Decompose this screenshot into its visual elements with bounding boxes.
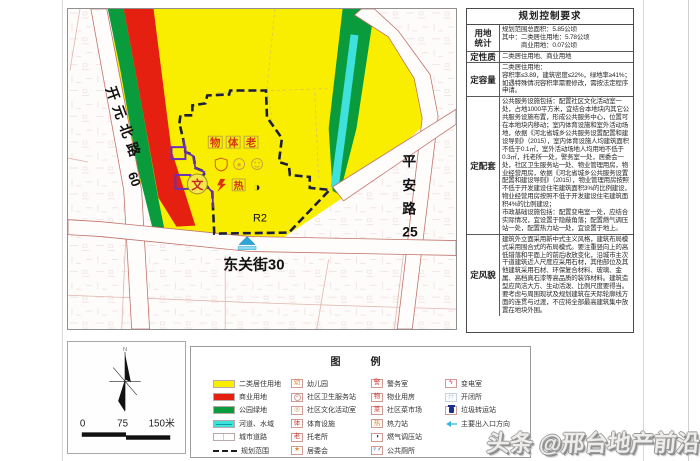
legend-facility-icon: 警 <box>371 379 383 388</box>
legend-item-label: 社区菜市场 <box>387 405 422 415</box>
legend-infrastructure-icon <box>445 406 457 415</box>
legend-column-facilities-2: 警 警务室 物 物业用房 菜 社区菜市场 热 热力站 <box>371 377 422 457</box>
table-row-label: 定容量 <box>467 63 500 97</box>
legend-facility-icon: 菜 <box>371 406 383 415</box>
legend-item-label: 规划范围 <box>241 446 269 456</box>
table-row-content: 规划范围总面积：5.85公顷 其中：二类居住用地：5.78公顷 商业用地：0.0… <box>500 25 633 51</box>
table-row: 用地 统计 规划范围总面积：5.85公顷 其中：二类居住用地：5.78公顷 商业… <box>467 25 633 52</box>
table-row-label: 定风貌 <box>467 235 500 316</box>
legend-facility-icon: 热 <box>371 419 383 428</box>
table-row-label: 用地 统计 <box>467 25 500 51</box>
legend-item: 垃圾转运站 <box>445 404 510 417</box>
scale-mid: 75 <box>117 418 128 429</box>
table-row-content: 公共服务设施包括：配置社区文化活动室一处，占地1000平方米，宜结合本地块内其它… <box>500 97 633 233</box>
table-row-label: 定性质 <box>467 52 500 62</box>
planning-control-table: 规划控制要求 用地 统计 规划范围总面积：5.85公顷 其中：二类居住用地：5.… <box>466 8 634 333</box>
zoning-map: 文 物 体 老 ★ 热 <box>67 8 457 330</box>
legend-item-label: 垃圾转运站 <box>461 405 496 415</box>
legend-item: 物 物业用房 <box>371 390 422 403</box>
legend: 图 例 二类居住用地 商业用地 公园绿地 <box>190 346 531 458</box>
legend-item: 河道、水域 <box>213 417 281 430</box>
toutiao-watermark: 头条 @邢台地产前沿 <box>485 424 700 458</box>
legend-facility-icon: ◑ <box>371 433 383 442</box>
legend-item: 老 托老所 <box>291 431 356 444</box>
scale-bar: 0 75 150米 <box>80 416 175 439</box>
legend-item: ★ 居委会 <box>291 444 356 457</box>
legend-item: 开 开闭所 <box>445 390 510 403</box>
legend-facility-icon: 物 <box>371 393 383 402</box>
legend-facility-icon: ♀♂ <box>371 446 383 455</box>
legend-item: 二类居住用地 <box>213 377 281 390</box>
legend-column-landuse: 二类居住用地 商业用地 公园绿地 河道、水域 <box>213 377 281 457</box>
legend-column-infrastructure: ϟ 变电室 开 开闭所 垃圾转运站 主要出入口方向 <box>445 377 510 431</box>
legend-item-label: 二类居住用地 <box>239 379 281 389</box>
legend-item: 体 体育设施 <box>291 417 356 430</box>
legend-item-label: 公园绿地 <box>239 405 267 415</box>
legend-infrastructure-icon <box>445 419 457 428</box>
road-label-dongguan: 东关街30 <box>223 255 284 273</box>
legend-swatch-icon <box>213 420 235 428</box>
legend-item-label: 开闭所 <box>461 392 482 402</box>
relic-label: 文 <box>191 178 204 192</box>
legend-item-label: 城市道路 <box>239 432 267 442</box>
table-row-content: 二类居住用地： 容积率≤3.89，建筑密度≤22%，绿地率≥41%；如遇特殊情况… <box>500 63 633 97</box>
legend-item-label: 社区文化活动室 <box>307 405 356 415</box>
legend-item: 公园绿地 <box>213 404 281 417</box>
legend-swatch-icon <box>213 450 237 452</box>
north-arrow-icon <box>109 352 140 412</box>
legend-item: ♀♂ 公共厕所 <box>371 444 422 457</box>
legend-item-label: 社区卫生服务站 <box>307 392 356 402</box>
scale-end: 150米 <box>149 416 175 429</box>
legend-infrastructure-icon: ϟ <box>445 379 457 388</box>
legend-swatch-icon <box>213 393 235 401</box>
table-row: 定容量 二类居住用地： 容积率≤3.89，建筑密度≤22%，绿地率≥41%；如遇… <box>467 63 633 98</box>
page-edge-far-right <box>688 0 689 461</box>
table-row-label: 定配套 <box>467 97 500 233</box>
legend-facility-icon: + <box>291 393 303 402</box>
committee-star-icon: ★ <box>236 161 242 169</box>
svg-text:25: 25 <box>402 224 418 240</box>
legend-facility-icon: ★ <box>291 446 303 455</box>
scale-zero: 0 <box>80 418 86 429</box>
legend-column-facilities-1: 幼 幼儿园 + 社区卫生服务站 ◎ 社区文化活动室 体 体育设施 <box>291 377 356 457</box>
legend-facility-icon: ◎ <box>291 406 303 415</box>
legend-item-label: 托老所 <box>307 432 328 442</box>
table-row: 定风貌 建筑外立面采用新中式主义风格，建筑布局模式采用围合式的布局模式。要注重竖… <box>467 235 633 316</box>
legend-swatch-icon <box>213 406 235 414</box>
planning-sheet: 文 物 体 老 ★ 热 <box>0 0 700 461</box>
table-title: 规划控制要求 <box>467 9 633 25</box>
legend-item: ϟ 变电室 <box>445 377 510 390</box>
page-edge-left <box>62 0 63 461</box>
table-row-content: 二类居住用地、商业用地 <box>500 52 633 62</box>
legend-swatch-icon <box>213 380 235 388</box>
page-edge-right <box>643 0 644 461</box>
marker-sports: 体 <box>228 136 239 149</box>
legend-title: 图 例 <box>191 353 530 368</box>
legend-item: + 社区卫生服务站 <box>291 390 356 403</box>
legend-item-label: 河道、水域 <box>239 419 274 429</box>
legend-facility-icon: 老 <box>291 433 303 442</box>
compass-svg: N 0 75 150米 <box>68 342 185 453</box>
table-row: 定性质 二类居住用地、商业用地 <box>467 52 633 63</box>
legend-item-label: 体育设施 <box>307 419 335 429</box>
legend-item-label: 热力站 <box>387 419 408 429</box>
legend-facility-icon: 体 <box>291 419 303 428</box>
legend-item-label: 商业用地 <box>239 392 267 402</box>
legend-item-label: 变电室 <box>461 379 482 389</box>
legend-item: 规划范围 <box>213 444 281 457</box>
legend-item-label: 燃气调压站 <box>387 432 422 442</box>
legend-item-label: 幼儿园 <box>307 379 328 389</box>
legend-item: 热 热力站 <box>371 417 422 430</box>
heat-station-marker: 热 <box>234 179 244 192</box>
parcel-code-label: R2 <box>253 213 267 225</box>
marker-property: 物 <box>210 136 221 149</box>
legend-item-label: 警务室 <box>387 379 408 389</box>
svg-text:平: 平 <box>402 153 416 169</box>
legend-facility-icon: 幼 <box>291 379 303 388</box>
svg-text:安: 安 <box>402 177 416 193</box>
table-rows: 用地 统计 规划范围总面积：5.85公顷 其中：二类居住用地：5.78公顷 商业… <box>467 25 633 332</box>
legend-item: 城市道路 <box>213 431 281 444</box>
legend-item: ◑ 燃气调压站 <box>371 431 422 444</box>
table-row: 定配套 公共服务设施包括：配置社区文化活动室一处，占地1000平方米，宜结合本地… <box>467 97 633 234</box>
legend-swatch-icon <box>213 433 235 441</box>
table-row-content: 建筑外立面采用新中式主义风格，建筑布局模式采用围合式的布局模式。要注重竖向上的高… <box>500 235 633 316</box>
legend-item: 商业用地 <box>213 390 281 403</box>
gas-station-icon: ◑ <box>253 180 260 194</box>
legend-item: 菜 社区菜市场 <box>371 404 422 417</box>
svg-text:路: 路 <box>402 201 417 217</box>
legend-infrastructure-icon: 开 <box>445 393 457 402</box>
relic-marker: 文 <box>187 174 207 194</box>
legend-item: ◎ 社区文化活动室 <box>291 404 356 417</box>
zoning-map-svg: 文 物 体 老 ★ 热 <box>68 9 456 329</box>
marker-elderly: 老 <box>245 136 257 149</box>
legend-item: 警 警务室 <box>371 377 422 390</box>
legend-item-label: 公共厕所 <box>387 446 415 456</box>
legend-item-label: 居委会 <box>307 446 328 456</box>
compass-scale-box: N 0 75 150米 <box>67 341 186 454</box>
legend-item: 幼 幼儿园 <box>291 377 356 390</box>
legend-item-label: 物业用房 <box>387 392 415 402</box>
